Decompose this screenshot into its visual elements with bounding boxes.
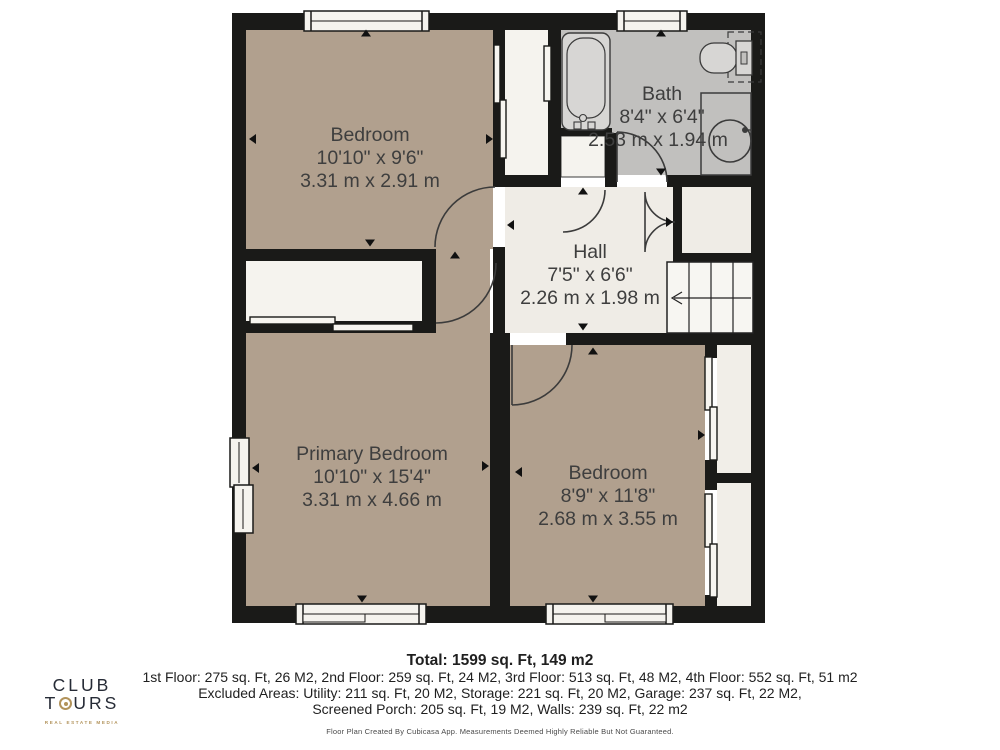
right-closet-sliding-door	[705, 494, 712, 547]
strip-closet-sliding-door	[500, 100, 506, 158]
strip-closet-floor	[505, 30, 548, 175]
logo-letters-urs: URS	[73, 693, 119, 713]
room-label-metric: 2.26 m x 1.98 m	[520, 287, 660, 309]
room-label-metric: 3.31 m x 4.66 m	[302, 489, 442, 511]
room-label-imperial: 8'4" x 6'4"	[619, 106, 704, 128]
disclaimer-text: Floor Plan Created By Cubicasa App. Meas…	[0, 727, 1000, 736]
room-label-name: Hall	[573, 241, 607, 263]
logo-letter-t: T	[45, 693, 59, 713]
logo-word-club: CLUB	[30, 676, 134, 694]
left-closet-sliding-door	[250, 317, 335, 324]
room-label-metric: 2.68 m x 3.55 m	[538, 508, 678, 530]
floor-plan-drawing: Bedroom 10'10" x 9'6" 3.31 m x 2.91 m Ba…	[0, 0, 1000, 750]
right-closet-sliding-door	[710, 407, 717, 460]
bathtub-icon	[562, 33, 610, 130]
closet-door-leaf	[544, 46, 551, 101]
room-label-metric: 2.53 m x 1.94 m	[588, 129, 728, 151]
left-closet-floor	[246, 261, 422, 321]
floors-area-line: 1st Floor: 275 sq. Ft, 26 M2, 2nd Floor:…	[0, 669, 1000, 685]
logo-tagline: REAL ESTATE MEDIA	[30, 714, 134, 732]
right-closet-top-floor	[717, 345, 751, 473]
room-label-imperial: 10'10" x 15'4"	[313, 466, 431, 488]
area-summary: Total: 1599 sq. Ft, 149 m2 1st Floor: 27…	[0, 652, 1000, 736]
room-label-imperial: 8'9" x 11'8"	[561, 485, 656, 507]
strip-closet-sliding-door	[494, 45, 500, 103]
room-label-name: Bedroom	[330, 124, 409, 146]
staircase-icon	[667, 262, 753, 333]
room-label-name: Primary Bedroom	[296, 443, 448, 465]
room-label-name: Bedroom	[568, 462, 647, 484]
left-closet-sliding-door	[333, 324, 413, 331]
window-primary-bottom	[296, 604, 426, 624]
room-label-imperial: 7'5" x 6'6"	[547, 264, 632, 286]
total-area-line: Total: 1599 sq. Ft, 149 m2	[0, 652, 1000, 669]
primary-entry-notch-floor	[436, 249, 490, 339]
floor-plan-page: Bedroom 10'10" x 9'6" 3.31 m x 2.91 m Ba…	[0, 0, 1000, 750]
right-closet-sliding-door	[710, 544, 717, 597]
window-bath	[617, 11, 687, 31]
room-label-metric: 3.31 m x 2.91 m	[300, 170, 440, 192]
window-bedroom-bottom	[546, 604, 673, 624]
window-bedroom-top	[304, 11, 429, 31]
excluded-areas-line: Excluded Areas: Utility: 211 sq. Ft, 20 …	[0, 685, 1000, 701]
hall-closet-floor	[682, 187, 751, 253]
excluded-areas-line-2: Screened Porch: 205 sq. Ft, 19 M2, Walls…	[0, 701, 1000, 717]
logo-word-tours: TURS	[30, 694, 134, 712]
window-primary-left	[230, 438, 253, 533]
right-closet-sliding-door	[705, 357, 712, 410]
logo-aperture-icon	[59, 697, 72, 710]
right-closet-bottom-floor	[717, 483, 751, 608]
room-label-name: Bath	[642, 83, 682, 105]
room-label-imperial: 10'10" x 9'6"	[317, 147, 424, 169]
club-tours-logo: CLUB TURS REAL ESTATE MEDIA	[30, 676, 134, 732]
